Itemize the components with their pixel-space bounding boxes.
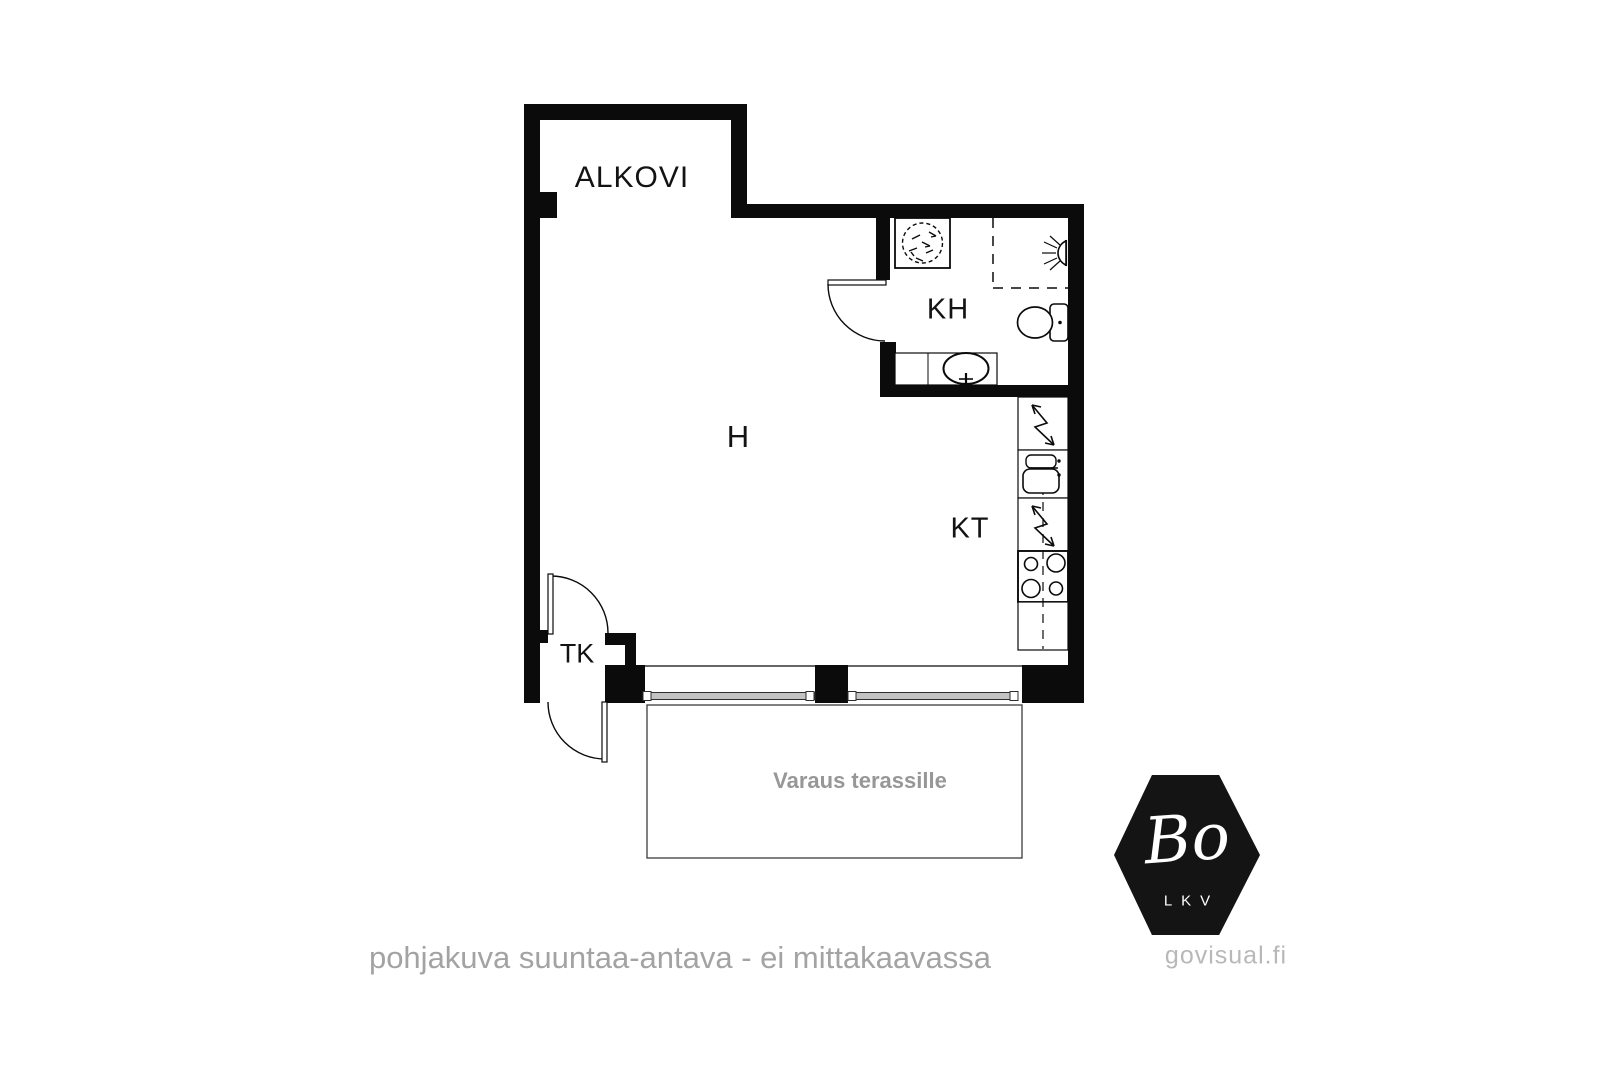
toilet-icon — [1018, 304, 1069, 341]
wall-kh-bottom — [880, 385, 1070, 397]
window-glass-right — [848, 693, 1018, 700]
wall-kh-left — [876, 218, 890, 280]
kh-door-arc — [828, 284, 885, 341]
wall-tk-stub-top — [605, 633, 636, 645]
wall-left — [524, 104, 540, 703]
wall-tk-pier — [605, 665, 645, 703]
shower-enclosure-dashed — [993, 218, 1068, 288]
wall-alkovi-left-stub — [540, 192, 557, 218]
brand-logo-sub: LKV — [1155, 893, 1219, 910]
entrance-door-leaf — [602, 702, 607, 762]
terrace-label: Varaus terassille — [773, 768, 947, 794]
washbasin — [895, 353, 997, 386]
kh-door-leaf — [828, 280, 886, 285]
kitchen-fixtures — [1018, 397, 1068, 650]
bathroom-fixtures — [895, 218, 1068, 386]
wall-alkovi-right — [731, 104, 747, 218]
tk-door-arc — [551, 576, 608, 633]
wall-top-main — [731, 204, 1084, 218]
brand-logo-main: Bo — [1142, 805, 1232, 875]
kitchen-sink-icon — [1023, 455, 1061, 493]
room-label-alkovi: ALKOVI — [575, 161, 689, 195]
room-label-h: H — [727, 419, 749, 455]
entrance-door-arc — [548, 702, 605, 759]
disclaimer-text: pohjakuva suuntaa-antava - ei mittakaava… — [369, 940, 991, 976]
tk-door-leaf — [548, 574, 553, 634]
wall-tk-left-stub — [540, 630, 548, 643]
room-label-tk: TK — [560, 639, 595, 670]
wall-kh-stub — [880, 342, 896, 387]
watermark-text: govisual.fi — [1165, 942, 1287, 971]
room-label-kh: KH — [927, 294, 969, 327]
wall-alkovi-top — [524, 104, 746, 120]
shower-head-icon — [1042, 236, 1066, 270]
wall-right — [1068, 204, 1084, 703]
floorplan-page: ALKOVI KH H KT TK Varaus terassille pohj… — [0, 0, 1600, 1067]
room-label-kt: KT — [950, 513, 989, 546]
wall-window-pier — [815, 665, 848, 703]
wall-corner-bottom-right — [1022, 665, 1084, 703]
wall-tk-connector — [625, 645, 636, 667]
counter-box-empty — [1018, 602, 1068, 650]
window-glass-left — [643, 693, 815, 700]
floorplan-drawing — [0, 0, 1600, 1067]
